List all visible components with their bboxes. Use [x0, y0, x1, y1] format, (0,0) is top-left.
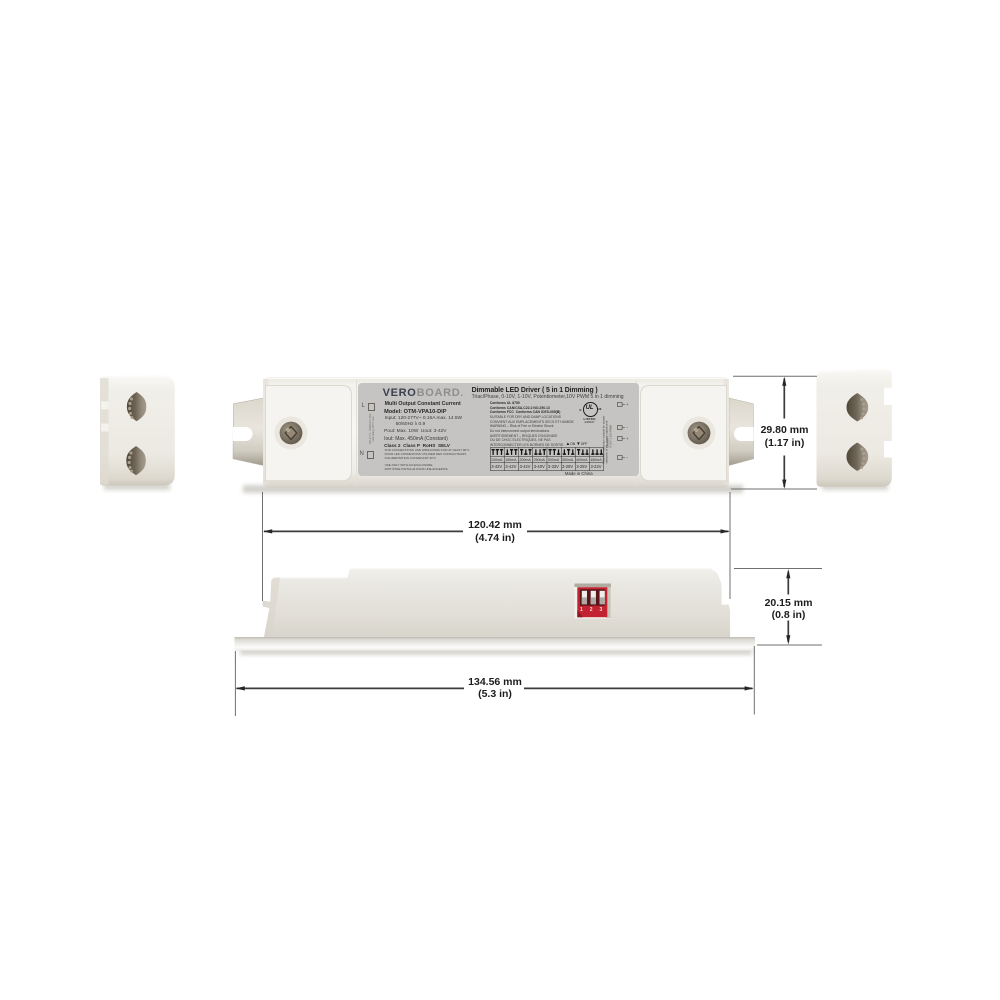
- svg-text:-: -: [626, 425, 628, 430]
- svg-text:+: +: [626, 403, 629, 408]
- svg-text:+: +: [626, 437, 629, 442]
- svg-text:-: -: [626, 455, 628, 460]
